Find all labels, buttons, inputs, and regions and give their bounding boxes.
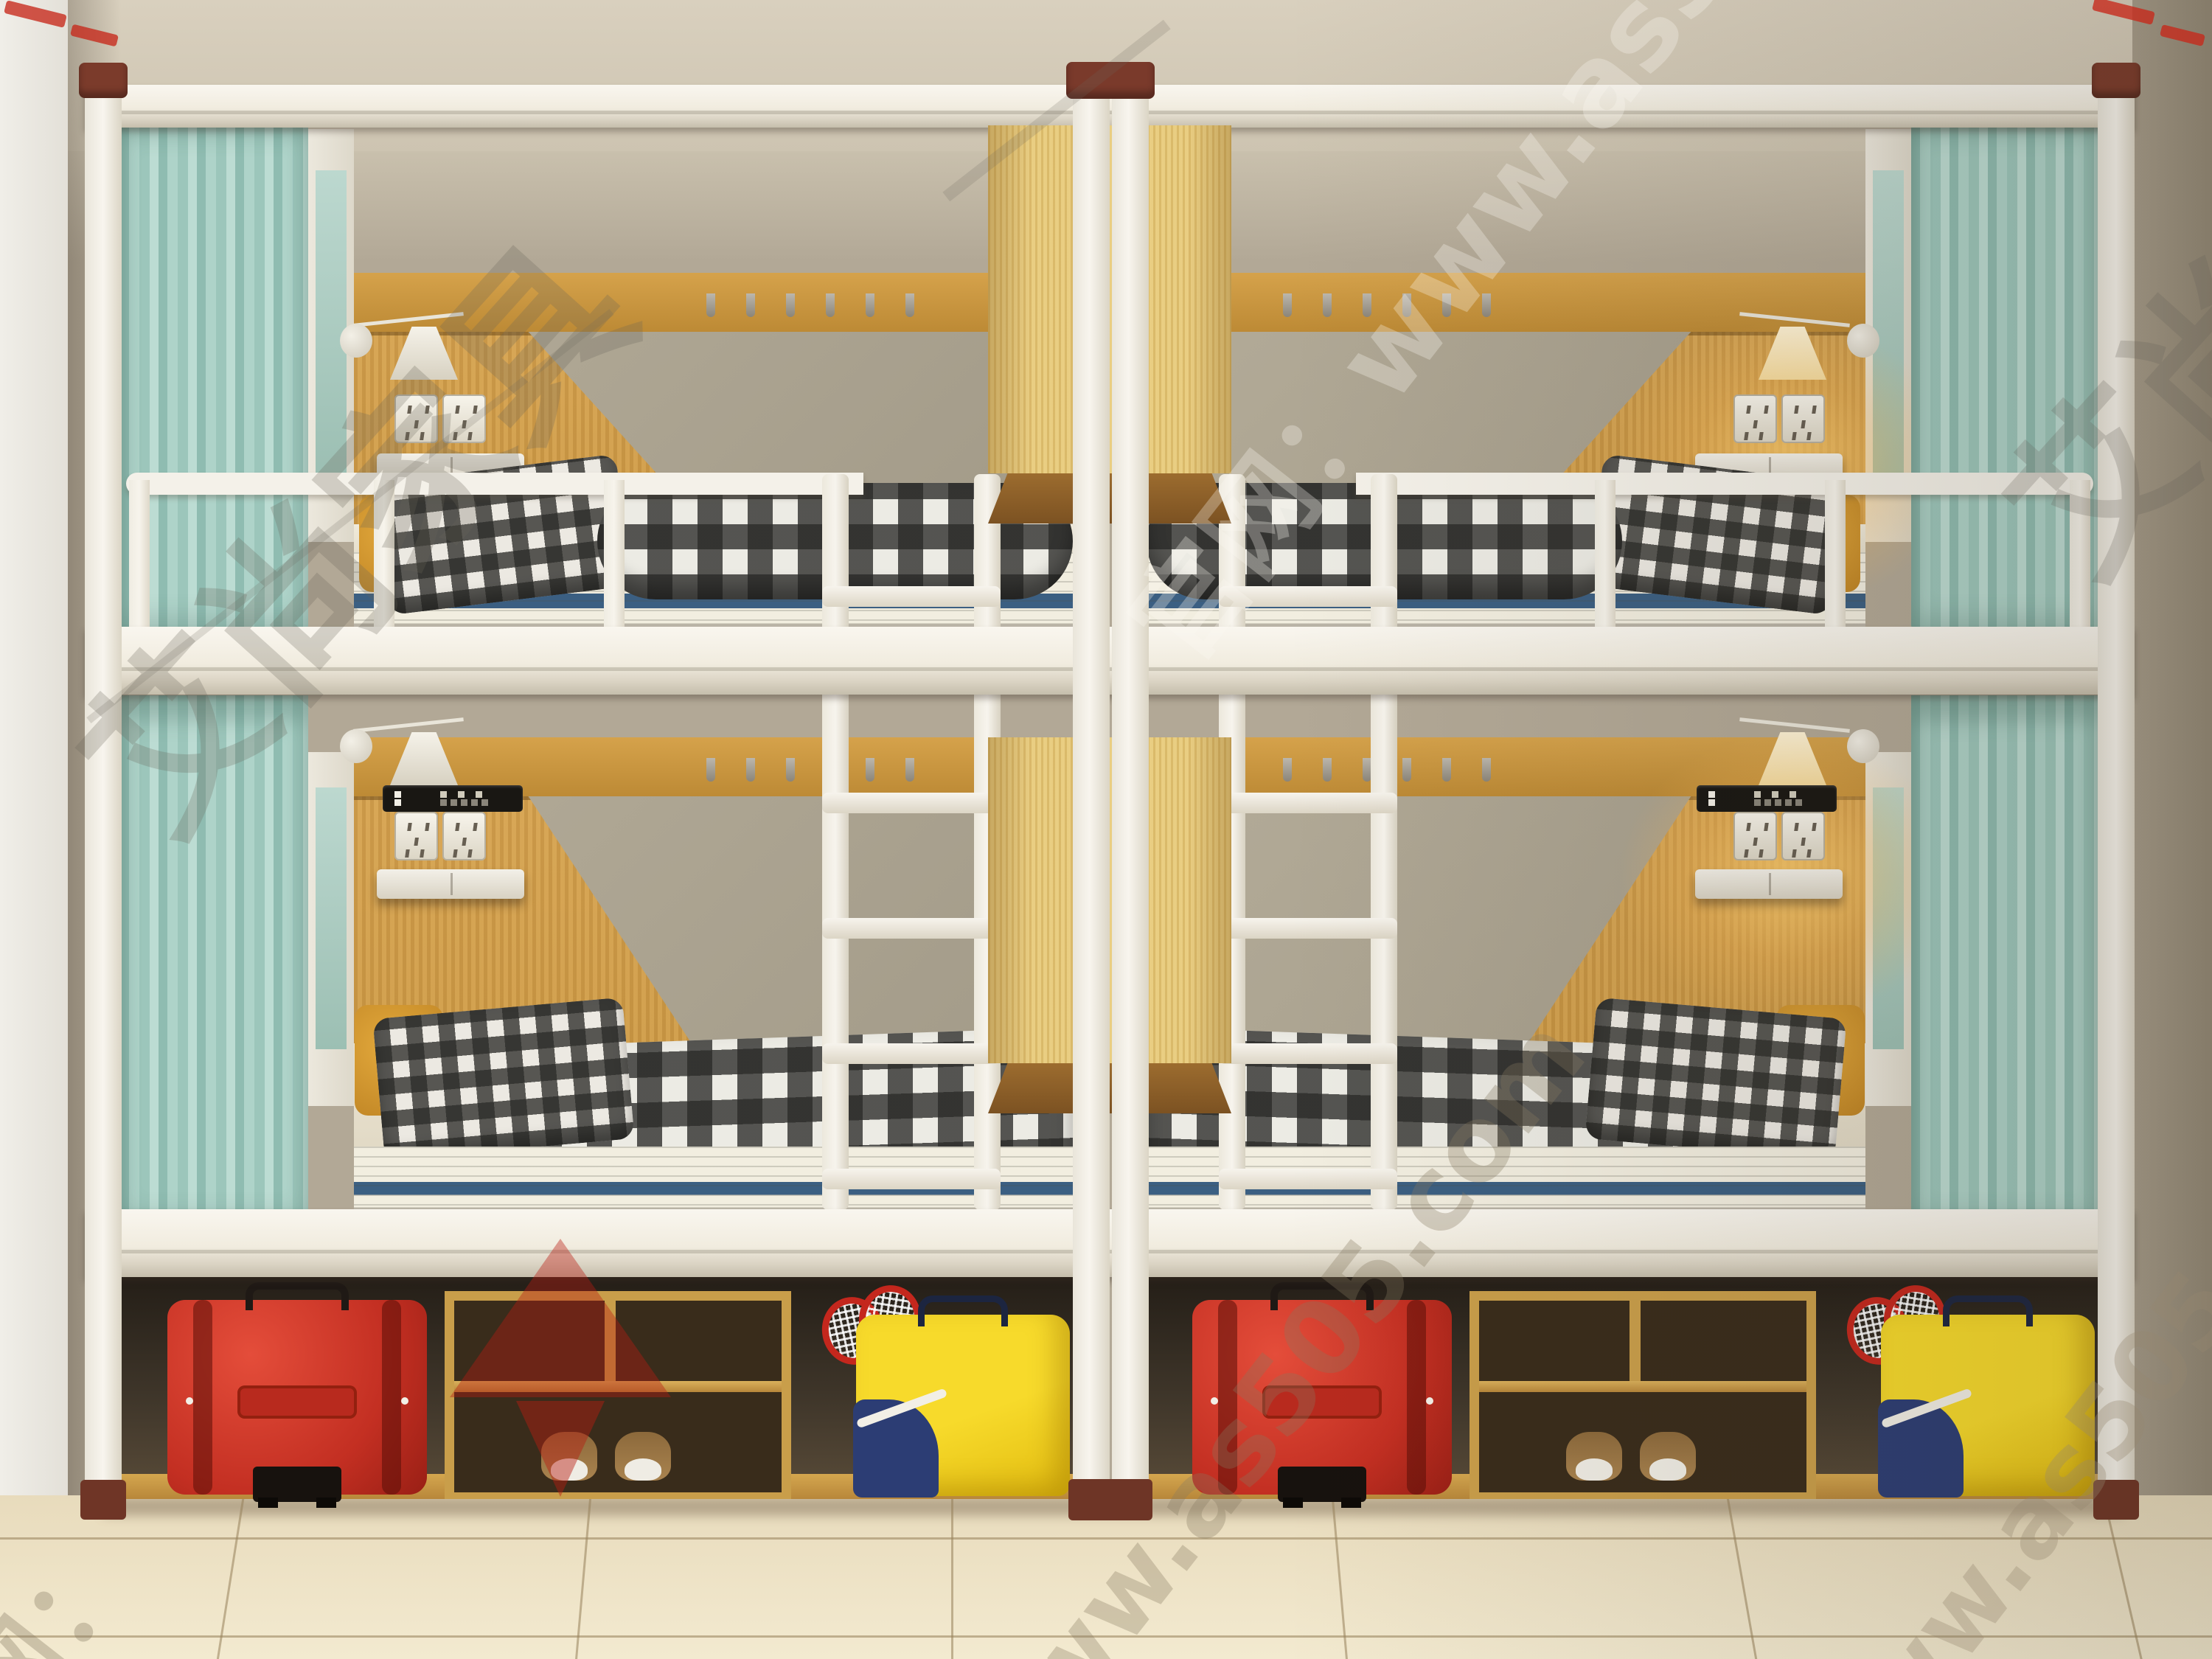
wall-lamp-upper bbox=[343, 306, 490, 402]
sneaker bbox=[1640, 1432, 1696, 1481]
plaid-pillow bbox=[372, 998, 634, 1161]
center-bed-post bbox=[1112, 85, 1149, 1519]
guardrail-bar bbox=[1825, 480, 1846, 638]
hanging-cabinet-lower bbox=[988, 737, 1231, 1063]
coat-hook-icon bbox=[1402, 758, 1411, 782]
lamp-arm bbox=[353, 312, 464, 327]
coat-hook-icon bbox=[1363, 293, 1371, 317]
guardrail-bar bbox=[1595, 480, 1615, 638]
power-outlet bbox=[1781, 812, 1825, 860]
lamp-shade-icon bbox=[390, 732, 458, 785]
guardrail-top bbox=[126, 473, 863, 495]
coat-hook-icon bbox=[786, 293, 795, 317]
wall-lamp-upper bbox=[1729, 306, 1877, 402]
cubby-divider bbox=[1630, 1301, 1641, 1381]
yellow-duffel-bag bbox=[856, 1315, 1070, 1496]
ladder-rung bbox=[822, 918, 1001, 939]
coat-hook-icon bbox=[1482, 758, 1491, 782]
coat-hook-icon bbox=[905, 758, 914, 782]
right-wall bbox=[2132, 0, 2212, 1659]
control-panel bbox=[383, 785, 523, 812]
privacy-curtain-lower bbox=[120, 695, 308, 1229]
canopy-beam bbox=[85, 85, 1110, 128]
lamp-shade-icon bbox=[1759, 732, 1826, 785]
post-cap bbox=[2092, 63, 2140, 98]
coat-hook-icon bbox=[786, 758, 795, 782]
ladder-rung bbox=[1219, 918, 1397, 939]
power-outlet bbox=[442, 812, 486, 860]
coat-hook-icon bbox=[746, 758, 755, 782]
shoe-cubby bbox=[1470, 1291, 1816, 1499]
ladder-rung bbox=[822, 793, 1001, 813]
sneaker bbox=[541, 1432, 597, 1481]
guardrail-bar bbox=[129, 480, 150, 638]
lamp-arm bbox=[1739, 717, 1850, 733]
bag-handle bbox=[918, 1295, 1008, 1326]
guardrail-bar bbox=[374, 480, 394, 638]
lamp-arm bbox=[353, 717, 464, 733]
ladder-rung bbox=[822, 1169, 1001, 1189]
coat-hook-icon bbox=[746, 293, 755, 317]
coat-hook-icon bbox=[1283, 293, 1292, 317]
power-outlets-upper bbox=[1733, 394, 1825, 443]
ladder-rung bbox=[822, 1043, 1001, 1064]
center-post-cap bbox=[1066, 62, 1155, 99]
upper-deck-beam bbox=[1110, 627, 2135, 695]
upper-deck-beam bbox=[85, 627, 1110, 695]
left-wall bbox=[0, 0, 68, 1585]
power-outlet bbox=[394, 812, 438, 860]
cubby-shelf bbox=[454, 1381, 782, 1392]
cubby-divider bbox=[605, 1301, 616, 1381]
power-outlet bbox=[394, 394, 438, 443]
ladder-rung bbox=[1219, 586, 1397, 607]
guardrail-top bbox=[1356, 473, 2093, 495]
coat-hook-icon bbox=[706, 758, 715, 782]
power-outlet bbox=[1733, 812, 1777, 860]
lamp-arm bbox=[1739, 312, 1850, 327]
post-foot bbox=[80, 1480, 126, 1520]
coat-hook-icon bbox=[1402, 293, 1411, 317]
lower-deck-beam bbox=[85, 1209, 1110, 1277]
power-outlets-lower bbox=[1733, 812, 1825, 860]
bag-handle bbox=[1943, 1295, 2033, 1326]
coat-hook-icon bbox=[905, 293, 914, 317]
suitcase-rivet bbox=[1426, 1397, 1433, 1405]
suitcase-wheel-base bbox=[253, 1467, 341, 1502]
suitcase-rivet bbox=[186, 1397, 193, 1405]
suitcase-rivet bbox=[1211, 1397, 1218, 1405]
suitcase-label-plate bbox=[237, 1385, 357, 1419]
wall-shelf-lower bbox=[377, 869, 524, 899]
suitcase-handle bbox=[1270, 1282, 1374, 1310]
ladder-rung bbox=[1219, 1169, 1397, 1189]
plaid-pillow bbox=[1585, 998, 1846, 1161]
sneaker bbox=[1566, 1432, 1622, 1481]
coat-hook-icon bbox=[1323, 293, 1332, 317]
cubby-shelf bbox=[1479, 1381, 1806, 1392]
center-bed-post bbox=[1073, 85, 1110, 1519]
power-outlet bbox=[1733, 394, 1777, 443]
lamp-shade-icon bbox=[390, 327, 458, 380]
post-foot bbox=[2093, 1480, 2139, 1520]
power-outlet bbox=[1781, 394, 1825, 443]
coat-hook-icon bbox=[1283, 758, 1292, 782]
suitcase-wheel-base bbox=[1278, 1467, 1366, 1502]
power-outlet bbox=[442, 394, 486, 443]
guardrail-bar bbox=[2070, 480, 2090, 638]
coat-hook-icon bbox=[866, 758, 874, 782]
lamp-wall-plate bbox=[1847, 324, 1879, 358]
hanging-cabinet-upper bbox=[988, 125, 1231, 473]
red-suitcase bbox=[1192, 1300, 1452, 1495]
ladder-rung bbox=[1219, 1043, 1397, 1064]
coat-hook-icon bbox=[866, 293, 874, 317]
ladder-stile bbox=[822, 474, 849, 1210]
lower-deck-beam bbox=[1110, 1209, 2135, 1277]
ladder-rung bbox=[1219, 793, 1397, 813]
coat-hook-icon bbox=[1323, 758, 1332, 782]
lamp-wall-plate bbox=[340, 324, 372, 358]
lamp-wall-plate bbox=[340, 729, 372, 763]
coat-hook-icon bbox=[706, 293, 715, 317]
hanging-cabinet-lower-underside bbox=[988, 1063, 1231, 1113]
lamp-wall-plate bbox=[1847, 729, 1879, 763]
privacy-curtain-lower bbox=[1911, 695, 2099, 1229]
dorm-bunk-render: 艾尚家具 官网：www.as505.com 艾尚家具 官网： www.as505… bbox=[0, 0, 2212, 1659]
power-outlets-lower bbox=[394, 812, 486, 860]
post-cap bbox=[79, 63, 128, 98]
bed-post bbox=[85, 85, 122, 1519]
canopy-beam bbox=[1110, 85, 2135, 128]
red-suitcase bbox=[167, 1300, 427, 1495]
wall-shelf-lower bbox=[1695, 869, 1843, 899]
power-outlets-upper bbox=[394, 394, 486, 443]
center-post-foot bbox=[1068, 1479, 1152, 1520]
sneaker bbox=[615, 1432, 671, 1481]
ladder-rung bbox=[822, 586, 1001, 607]
suitcase-label-plate bbox=[1262, 1385, 1382, 1419]
tile-grout-line bbox=[0, 1635, 2212, 1638]
hanging-cabinet-upper-underside bbox=[988, 473, 1231, 524]
suitcase-handle bbox=[246, 1282, 349, 1310]
coat-hook-icon bbox=[826, 293, 835, 317]
bunk-unit-left bbox=[85, 85, 1110, 1519]
suitcase-rivet bbox=[401, 1397, 408, 1405]
yellow-duffel-bag bbox=[1881, 1315, 2095, 1496]
bunk-unit-right bbox=[1110, 85, 2135, 1519]
lamp-shade-icon bbox=[1759, 327, 1826, 380]
coat-hook-icon bbox=[1442, 293, 1451, 317]
tile-grout-line bbox=[0, 1537, 2212, 1540]
coat-hook-icon bbox=[1482, 293, 1491, 317]
control-panel bbox=[1697, 785, 1837, 812]
coat-hook-icon bbox=[1442, 758, 1451, 782]
shoe-cubby bbox=[445, 1291, 791, 1499]
guardrail-bar bbox=[604, 480, 625, 638]
ladder-stile bbox=[1371, 474, 1397, 1210]
bed-post bbox=[2098, 85, 2135, 1519]
